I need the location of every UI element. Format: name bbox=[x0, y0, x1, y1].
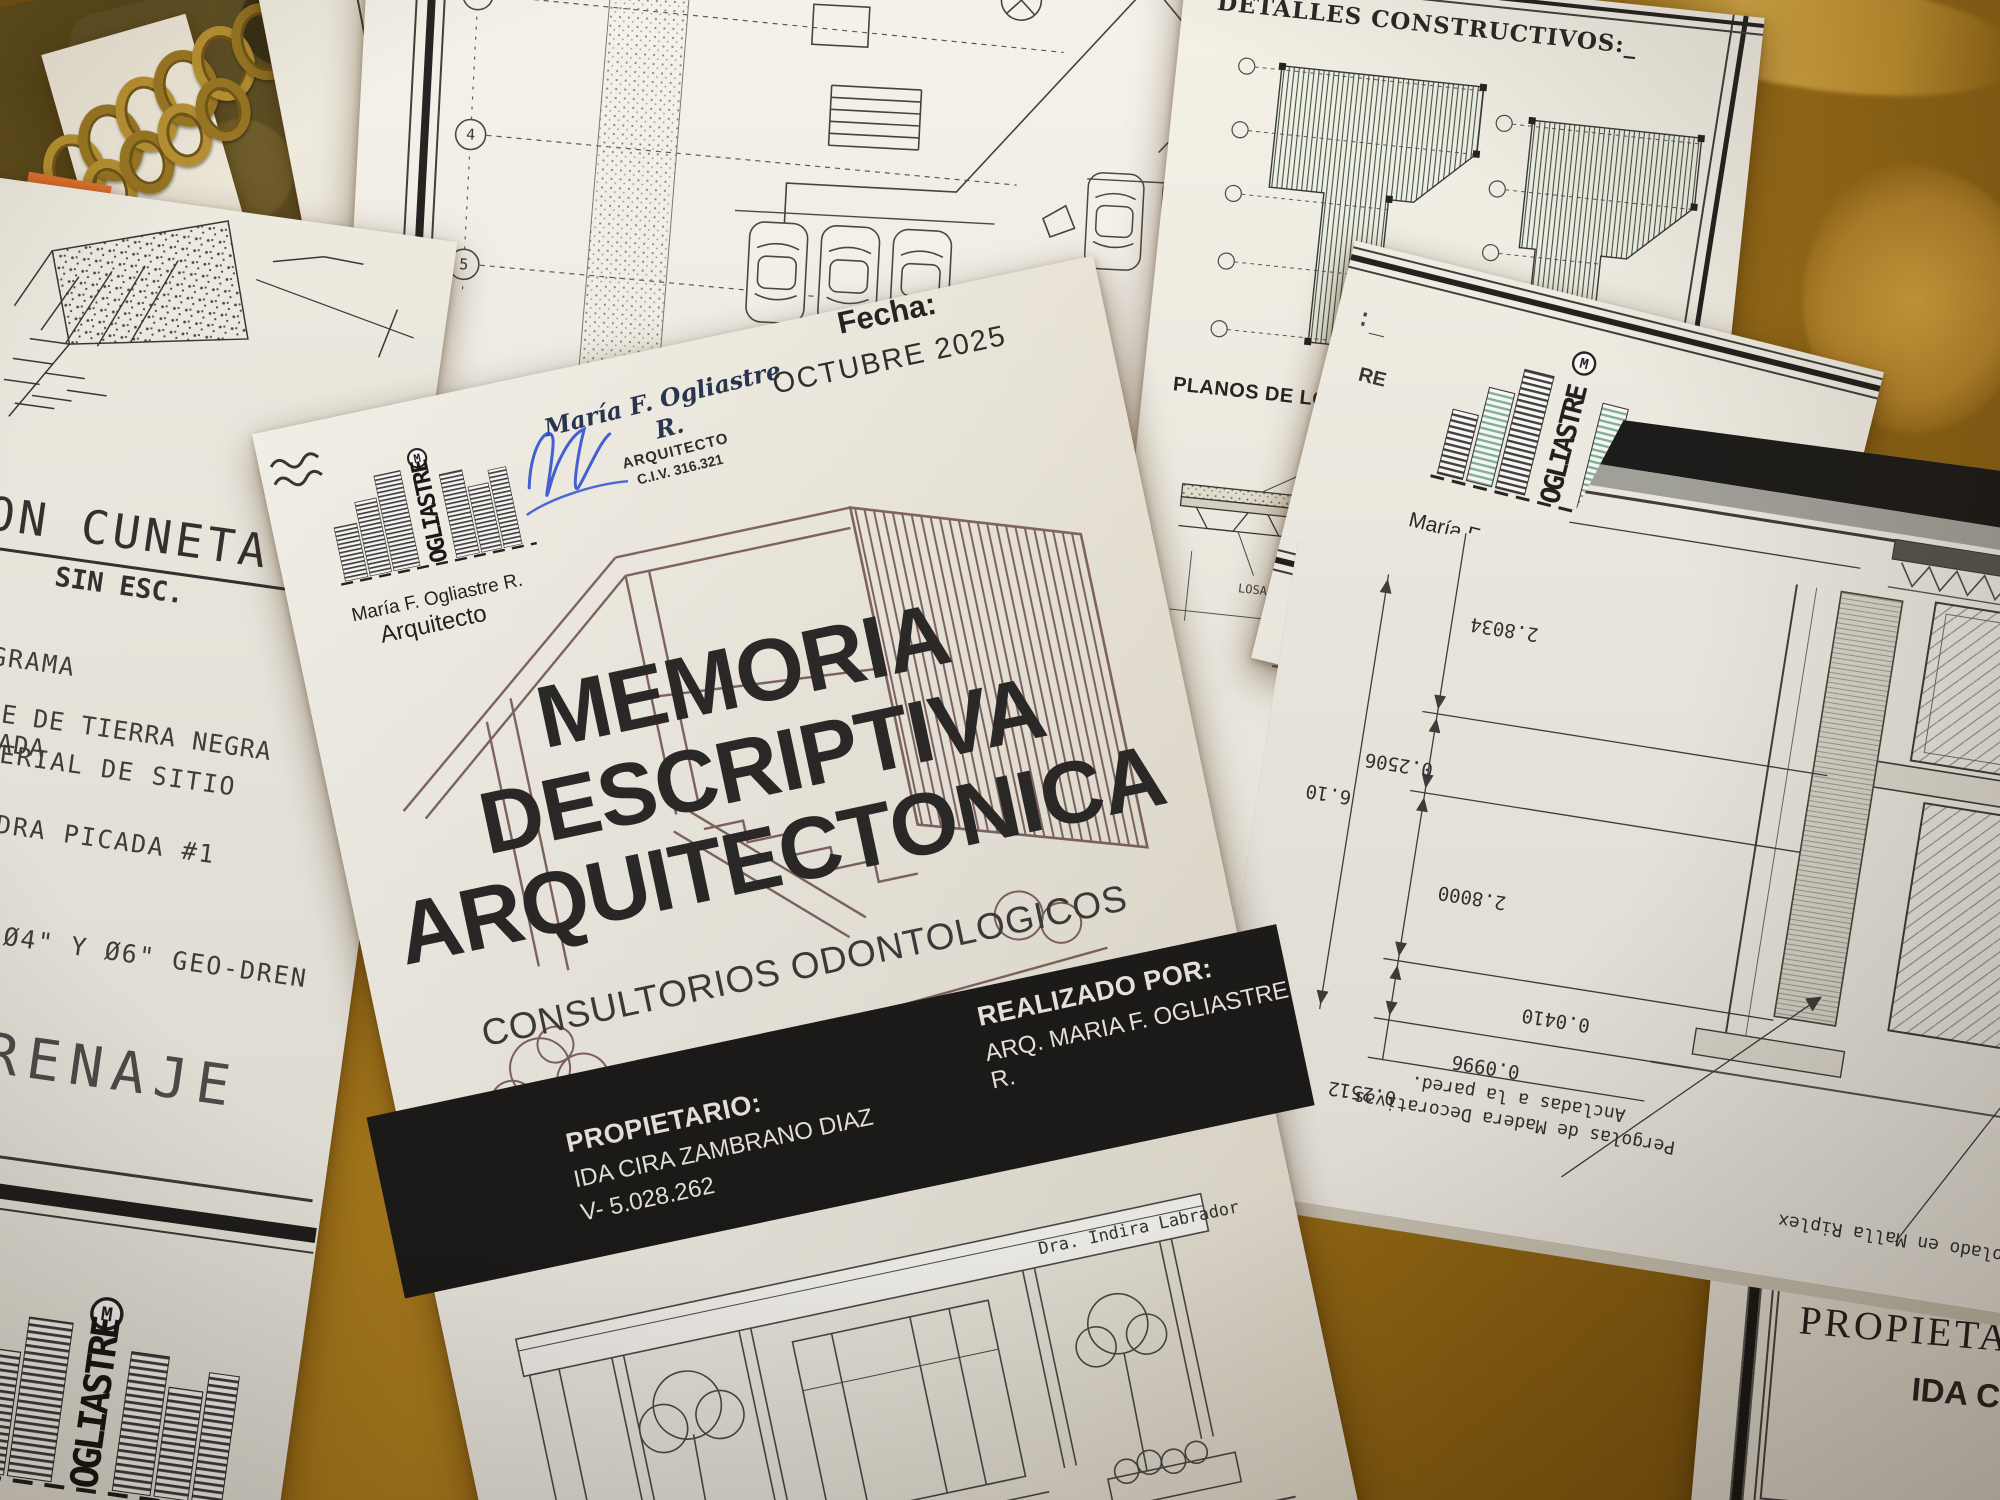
fecha-value: OCTUBRE 2025 bbox=[770, 320, 1010, 402]
re-partial: RE bbox=[1356, 364, 1389, 393]
legend-item: TUBO Ø4" Y Ø6" GEO-DREN bbox=[0, 910, 310, 993]
legend-item: — GRAMA bbox=[0, 637, 78, 682]
field-partial: :_ bbox=[1353, 302, 1391, 339]
svg-text:0.0410: 0.0410 bbox=[1520, 1004, 1591, 1036]
svg-text:6.10: 6.10 bbox=[1304, 779, 1353, 808]
architect-logo-mono: M OGLIASTRE bbox=[0, 1269, 272, 1500]
svg-text:2.8034: 2.8034 bbox=[1469, 613, 1540, 645]
legend-item: —PIEDRA PICADA #1 bbox=[0, 800, 218, 869]
photo-scene: 23 45 bbox=[0, 0, 2000, 1500]
svg-text:5: 5 bbox=[459, 255, 469, 273]
svg-text:0.2506: 0.2506 bbox=[1363, 748, 1434, 780]
drenaje-label: DRENAJE bbox=[0, 1015, 243, 1121]
svg-text:4: 4 bbox=[466, 125, 476, 143]
svg-text:2.8000: 2.8000 bbox=[1436, 881, 1507, 913]
svg-text:3: 3 bbox=[473, 0, 483, 4]
